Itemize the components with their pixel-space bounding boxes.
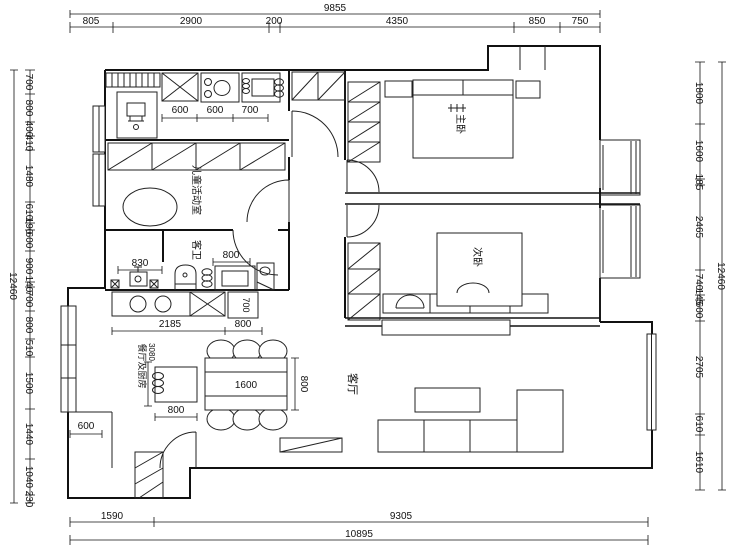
floor-plan-page: 9855 805 2900 200 4350 850 750 1590 9305… xyxy=(0,0,740,555)
dim-top-seg-4: 850 xyxy=(529,16,546,27)
dim-porch-600: 600 xyxy=(78,421,95,432)
nightstand-right xyxy=(516,81,540,98)
room-label-second-bedroom: 次卧 xyxy=(471,247,484,267)
walls xyxy=(68,46,652,498)
counter-sink xyxy=(112,292,190,316)
dim-right-seg-6: 600 xyxy=(693,302,704,319)
dim-right: 12460 1800 1600 185 2465 740 145 600 270… xyxy=(693,62,726,490)
dim-top-seg-0: 805 xyxy=(83,16,100,27)
dim-left-seg-11: 800 xyxy=(23,317,34,334)
dim-tall-unit-700: 700 xyxy=(241,297,251,312)
toilet xyxy=(175,265,196,290)
dim-right-seg-7: 2705 xyxy=(693,356,704,379)
dim-top-total: 9855 xyxy=(324,3,347,14)
dim-island-800: 800 xyxy=(168,405,185,416)
dim-left-seg-14: 1440 xyxy=(23,423,34,446)
dim-bottom-total: 10895 xyxy=(345,529,373,540)
play-rug xyxy=(123,188,177,226)
room-label-guest-bath: 客卫 xyxy=(190,240,203,260)
dim-laundry-830: 830 xyxy=(132,258,149,269)
bed-ornament xyxy=(448,104,466,112)
dim-top-seg-1: 2900 xyxy=(180,16,203,27)
window-dining-west xyxy=(61,306,76,412)
floor-plan-canvas: 9855 805 2900 200 4350 850 750 1590 9305… xyxy=(0,0,740,555)
door-kitchen xyxy=(292,111,338,157)
dim-top-seg-2: 200 xyxy=(266,16,283,27)
dim-right-seg-2: 185 xyxy=(693,174,704,191)
dim-left-seg-1: 800 xyxy=(23,100,34,117)
sofa xyxy=(378,390,563,452)
dim-left-seg-16: 230 xyxy=(23,491,34,508)
dim-left-seg-15: 1040 xyxy=(23,466,34,489)
stove xyxy=(201,73,239,102)
dim-top-seg-3: 4350 xyxy=(386,16,409,27)
dim-right-seg-8: 610 xyxy=(693,416,704,433)
second-fixtures xyxy=(348,233,548,320)
door-entry xyxy=(160,432,196,468)
tv-cabinet-north xyxy=(382,320,510,335)
second-bed xyxy=(437,233,522,306)
dim-counter-800: 800 xyxy=(235,319,252,330)
master-fixtures xyxy=(348,80,540,162)
second-wardrobe xyxy=(348,243,380,320)
dim-kitchen-600b: 600 xyxy=(207,105,224,116)
room-label-dining-kitchen: 餐厅及厨房 xyxy=(137,343,148,388)
dim-left-seg-3: 410 xyxy=(23,135,34,152)
bay-window-master xyxy=(600,140,640,195)
dim-top: 9855 805 2900 200 4350 850 750 xyxy=(70,3,600,33)
tv-stand xyxy=(280,438,342,452)
dim-left-total: 12460 xyxy=(7,272,18,300)
dim-right-seg-1: 1600 xyxy=(693,140,704,163)
window-kitchen-west xyxy=(93,106,105,152)
dim-left-seg-7: 600 xyxy=(23,232,34,249)
dim-bottom: 1590 9305 10895 xyxy=(70,511,648,545)
corner-basin xyxy=(257,263,274,290)
dim-left-seg-8: 900 xyxy=(23,258,34,275)
tile-strip xyxy=(106,73,160,87)
dim-left: 12460 700 800 400 410 1480 610 190 600 9… xyxy=(7,70,35,508)
window-living-east xyxy=(647,334,656,430)
dim-table-1600: 1600 xyxy=(235,380,258,391)
dim-left-seg-13: 1500 xyxy=(23,372,34,395)
porch xyxy=(135,452,163,498)
radiator-dining xyxy=(153,373,164,394)
dim-right-total: 12460 xyxy=(715,262,726,290)
dim-table-800: 800 xyxy=(298,376,309,393)
dim-bottom-seg-0: 1590 xyxy=(101,511,124,522)
dining-fixtures xyxy=(153,340,288,430)
coffee-table xyxy=(415,388,480,412)
counter-row xyxy=(112,292,258,318)
cabinet-x xyxy=(162,73,198,101)
door-second-bedroom xyxy=(347,205,379,237)
chair xyxy=(396,295,424,308)
door-master-bedroom xyxy=(347,160,379,192)
dim-right-seg-3: 2465 xyxy=(693,216,704,239)
kitchen-fixtures xyxy=(106,72,345,138)
dim-bottom-seg-1: 9305 xyxy=(390,511,413,522)
dim-kitchen-600a: 600 xyxy=(172,105,189,116)
window-children-west xyxy=(93,154,105,206)
dim-top-seg-5: 750 xyxy=(572,16,589,27)
dining-chairs-bottom xyxy=(207,408,287,430)
floor-drain-marks xyxy=(111,280,158,288)
dim-right-seg-0: 1800 xyxy=(693,82,704,105)
dim-left-seg-12: 510 xyxy=(23,340,34,357)
room-label-living-room: 客厅 xyxy=(346,373,360,395)
room-label-master-bedroom: 主卧 xyxy=(454,114,467,134)
bay-window-second xyxy=(600,205,640,278)
island-cabinet xyxy=(155,367,197,402)
radiator-bath xyxy=(202,269,212,287)
master-wardrobe xyxy=(348,82,380,162)
dim-left-seg-10: 700 xyxy=(23,291,34,308)
radiator-entry xyxy=(275,79,284,97)
dim-counter-2185: 2185 xyxy=(159,319,182,330)
dim-right-seg-9: 1610 xyxy=(693,451,704,474)
dim-kitchen-700: 700 xyxy=(242,105,259,116)
dim-left-seg-4: 1480 xyxy=(23,165,34,188)
door-children-room xyxy=(247,180,289,222)
hall-cabinet xyxy=(292,72,345,100)
living-fixtures xyxy=(280,320,563,452)
dim-dining-3080: 3080 xyxy=(147,343,156,361)
nightstand-left xyxy=(385,81,412,97)
dim-left-seg-0: 700 xyxy=(23,74,34,91)
dim-bath-800: 800 xyxy=(223,250,240,261)
room-label-children-room: 儿童活动室 xyxy=(190,165,203,215)
bath-cabinet xyxy=(215,266,255,290)
porch-column xyxy=(135,452,163,498)
counter-x-unit xyxy=(190,292,225,316)
fridge xyxy=(117,92,157,138)
